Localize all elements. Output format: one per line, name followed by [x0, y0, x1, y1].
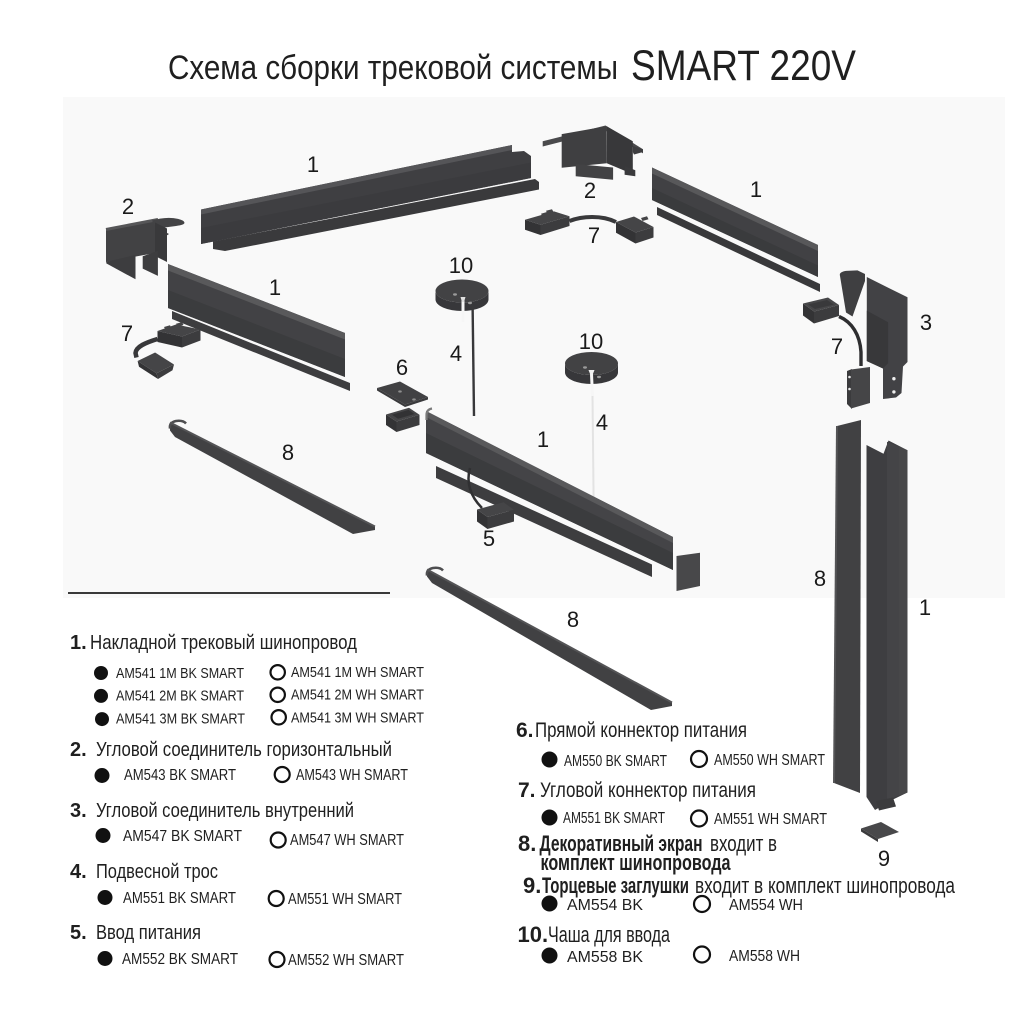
- svg-text:Ввод питания: Ввод питания: [96, 922, 201, 944]
- svg-text:8: 8: [282, 440, 294, 465]
- svg-text:AM551 WH SMART: AM551 WH SMART: [714, 811, 827, 828]
- svg-text:AM541 3M BK SMART: AM541 3M BK SMART: [116, 711, 245, 728]
- svg-text:6.: 6.: [516, 719, 534, 742]
- svg-text:3.: 3.: [70, 800, 87, 822]
- svg-text:AM543 WH SMART: AM543 WH SMART: [296, 767, 408, 784]
- svg-text:2: 2: [584, 178, 596, 203]
- svg-text:1: 1: [537, 427, 549, 452]
- svg-text:6: 6: [396, 355, 408, 380]
- svg-text:AM547 WH SMART: AM547 WH SMART: [290, 832, 404, 849]
- svg-text:AM550 BK SMART: AM550 BK SMART: [564, 753, 667, 770]
- svg-text:AM551 BK SMART: AM551 BK SMART: [123, 890, 236, 907]
- svg-text:1: 1: [307, 152, 319, 177]
- svg-text:10: 10: [579, 329, 603, 354]
- svg-text:AM541 1M WH SMART: AM541 1M WH SMART: [291, 664, 424, 681]
- svg-text:5.: 5.: [70, 922, 87, 944]
- svg-text:Торцевые заглушки: Торцевые заглушки: [542, 873, 689, 898]
- svg-text:AM541 1M BK SMART: AM541 1M BK SMART: [116, 665, 244, 682]
- svg-text:1: 1: [750, 177, 762, 202]
- svg-text:AM552 WH SMART: AM552 WH SMART: [288, 952, 404, 969]
- svg-text:AM551 WH SMART: AM551 WH SMART: [288, 891, 402, 908]
- svg-text:7: 7: [831, 334, 843, 359]
- svg-text:5: 5: [483, 526, 495, 551]
- svg-text:AM543 BK SMART: AM543 BK SMART: [124, 767, 236, 784]
- svg-text:1: 1: [919, 595, 931, 620]
- svg-text:1: 1: [269, 275, 281, 300]
- svg-text:AM541 3M WH SMART: AM541 3M WH SMART: [291, 710, 424, 727]
- svg-text:AM547 BK SMART: AM547 BK SMART: [123, 828, 242, 845]
- svg-text:4: 4: [450, 341, 462, 366]
- svg-text:10.: 10.: [518, 922, 549, 947]
- svg-text:4: 4: [596, 410, 608, 435]
- svg-text:8: 8: [567, 607, 579, 632]
- svg-text:9.: 9.: [523, 873, 541, 898]
- svg-text:AM554 BK: AM554 BK: [567, 897, 643, 914]
- svg-text:8: 8: [814, 566, 826, 591]
- svg-text:AM558 BK: AM558 BK: [567, 949, 643, 966]
- svg-text:AM550 WH SMART: AM550 WH SMART: [714, 752, 825, 769]
- svg-text:AM541 2M WH SMART: AM541 2M WH SMART: [291, 687, 424, 704]
- svg-text:Угловой соединитель горизонтал: Угловой соединитель горизонтальный: [96, 739, 392, 761]
- svg-text:4.: 4.: [70, 861, 87, 883]
- svg-text:Чаша для ввода: Чаша для ввода: [548, 922, 671, 947]
- svg-text:Подвесной трос: Подвесной трос: [96, 861, 218, 883]
- svg-text:AM552 BK SMART: AM552 BK SMART: [122, 951, 238, 968]
- svg-text:8.: 8.: [518, 831, 536, 856]
- svg-text:9: 9: [878, 846, 890, 871]
- svg-text:10: 10: [449, 253, 473, 278]
- svg-text:AM558 WH: AM558 WH: [729, 948, 800, 965]
- svg-text:AM551 BK SMART: AM551 BK SMART: [563, 810, 665, 827]
- svg-text:Накладной трековый шинопровод: Накладной трековый шинопровод: [90, 632, 357, 654]
- svg-text:3: 3: [920, 310, 932, 335]
- svg-text:входит в комплект шинопровода: входит в комплект шинопровода: [695, 873, 956, 898]
- svg-text:Схема сборки трековой системы: Схема сборки трековой системы: [168, 49, 618, 87]
- svg-text:AM554 WH: AM554 WH: [729, 897, 803, 914]
- svg-text:2: 2: [122, 194, 134, 219]
- svg-text:комплект шинопровода: комплект шинопровода: [541, 850, 732, 875]
- svg-text:AM541 2M BK SMART: AM541 2M BK SMART: [116, 688, 244, 705]
- svg-text:2.: 2.: [70, 739, 87, 761]
- svg-text:1.: 1.: [70, 632, 87, 654]
- svg-text:Угловой соединитель внутренний: Угловой соединитель внутренний: [96, 800, 354, 822]
- svg-text:Угловой коннектор питания: Угловой коннектор питания: [540, 779, 756, 802]
- svg-text:Прямой коннектор питания: Прямой коннектор питания: [535, 719, 747, 742]
- svg-text:SMART 220V: SMART 220V: [631, 42, 856, 90]
- svg-text:7: 7: [588, 223, 600, 248]
- svg-text:7.: 7.: [518, 779, 536, 802]
- svg-text:7: 7: [121, 321, 133, 346]
